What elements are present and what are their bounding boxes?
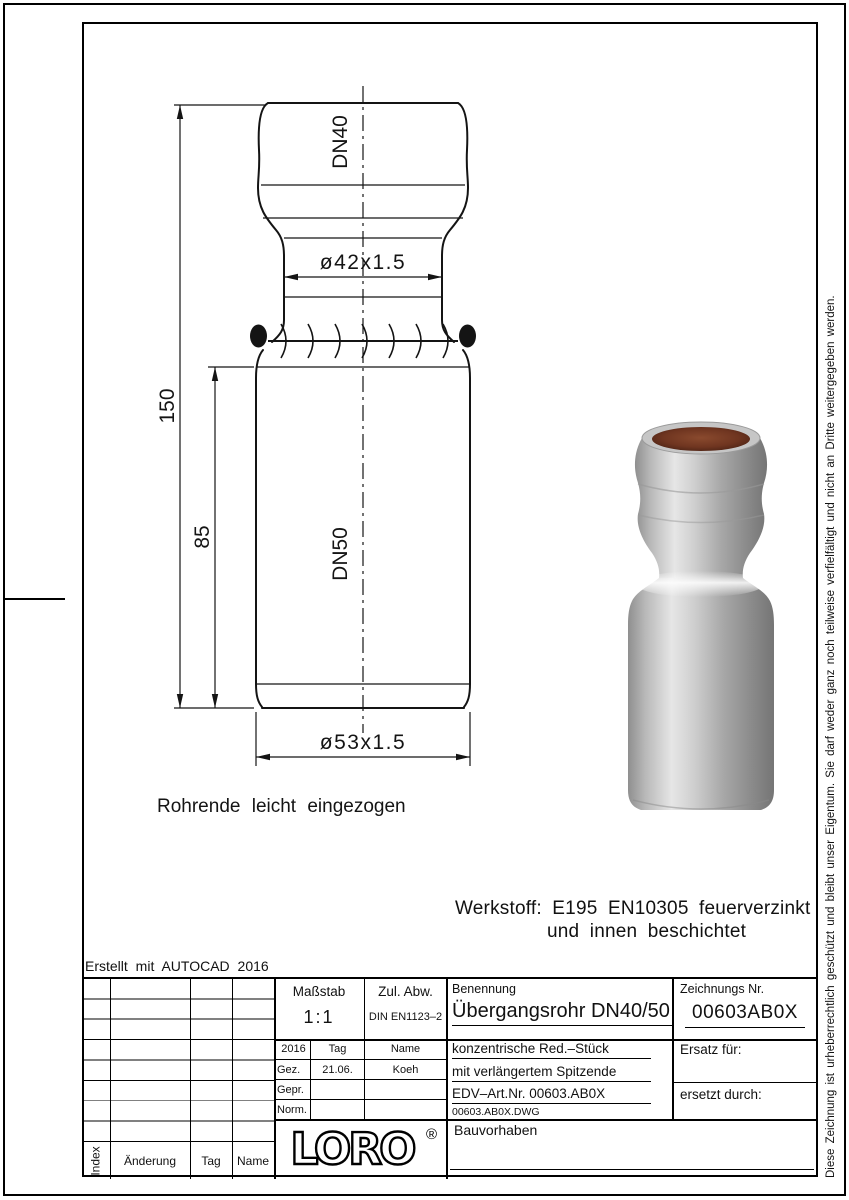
drawn-label: Gez. [274, 1059, 310, 1079]
description-row-1: konzentrische Red.–Stück [446, 1039, 672, 1062]
tolerance-value: DIN EN1123–2 [365, 1011, 446, 1023]
render-socket [635, 438, 767, 578]
material-line1: Werkstoff: E195 EN10305 feuerverzinkt [455, 897, 810, 920]
socket-left-wall [258, 103, 284, 342]
designation-label: Benennung [452, 982, 666, 996]
title-block: Index Änderung Tag Name Maßstab 1:1 Zul.… [82, 977, 818, 1177]
file-name-row: 00603.AB0X.DWG [446, 1106, 672, 1119]
standard-name [364, 1099, 446, 1119]
checked-date [310, 1079, 364, 1099]
signature-tag-header: Tag [310, 1039, 364, 1059]
drawing-number-cell: Zeichnungs Nr. 00603AB0X [672, 979, 818, 1039]
dn-top-label: DN40 [329, 115, 352, 169]
description-row-2: mit verlängertem Spitzende [446, 1062, 672, 1084]
pipe-end-note: Rohrende leicht eingezogen [157, 796, 406, 817]
standard-date [310, 1099, 364, 1119]
dim-total-height-label: 150 [156, 388, 179, 423]
project-label: Bauvorhaben [454, 1122, 810, 1138]
scale-label: Maßstab [274, 979, 364, 999]
loro-logo-text: LORO [290, 1124, 415, 1175]
designation-value: Übergangsrohr DN40/50 [452, 1000, 674, 1026]
material-note: Werkstoff: E195 EN10305 feuerverzinkt un… [455, 897, 810, 943]
revision-table-header: Index Änderung Tag Name [82, 1142, 274, 1179]
loro-logo: LORO ® [278, 1121, 442, 1177]
dimension-lines [174, 105, 470, 766]
render-bore [652, 427, 750, 451]
dim-bottom-diameter-label: ø53x1.5 [320, 731, 406, 754]
standard-label: Norm. [274, 1099, 310, 1119]
drawing-number-label: Zeichnungs Nr. [680, 982, 810, 996]
revision-name-header: Name [232, 1142, 274, 1179]
signature-name-header: Name [364, 1039, 446, 1059]
socket-right-wall [442, 103, 468, 342]
revision-date-header: Tag [190, 1142, 232, 1179]
signature-year: 2016 [274, 1039, 310, 1059]
description-row-3: EDV–Art.Nr. 00603.AB0X [446, 1084, 672, 1106]
scale-value: 1:1 [274, 1007, 364, 1028]
replaced-by-cell: ersetzt durch: [672, 1082, 818, 1119]
render-body [628, 578, 774, 810]
pipe-3d-render [628, 422, 774, 810]
tolerance-cell: Zul. Abw. DIN EN1123–2 [364, 979, 446, 1039]
checked-label: Gepr. [274, 1079, 310, 1099]
drawn-name: Koeh [364, 1059, 446, 1079]
dim-top-diameter-label: ø42x1.5 [320, 251, 406, 274]
dn-bottom-label: DN50 [329, 527, 352, 581]
drawn-date: 21.06. [310, 1059, 364, 1079]
dimension-arrows [177, 105, 470, 760]
signature-table: 2016 Tag Name Gez. 21.06. Koeh Gepr. Nor… [274, 1039, 446, 1119]
drawing-number-value: 00603AB0X [685, 1002, 805, 1028]
created-with-note: Erstellt mit AUTOCAD 2016 [85, 958, 269, 974]
project-cell: Bauvorhaben [446, 1119, 818, 1179]
project-writing-line [450, 1169, 814, 1170]
body-left-wall [256, 350, 263, 707]
joint-bead-left [250, 325, 267, 348]
designation-cell: Benennung Übergangsrohr DN40/50 [446, 979, 672, 1039]
material-line2: und innen beschichtet [547, 920, 810, 943]
drawing-sheet: 150 85 DN40 DN50 ø42x1.5 ø53x1.5 Rohrend… [0, 0, 849, 1200]
scale-cell: Maßstab 1:1 [274, 979, 364, 1039]
render-shoulder-shine [636, 571, 764, 597]
company-logo-cell: LORO ® [274, 1119, 446, 1179]
dim-body-height-label: 85 [191, 525, 214, 548]
tolerance-label: Zul. Abw. [365, 979, 446, 999]
copyright-vertical-text: Diese Zeichnung ist urheberrechtlich ges… [825, 18, 843, 1178]
revision-index-header: Index [82, 1142, 110, 1179]
registered-trademark-icon: ® [426, 1126, 437, 1143]
checked-name [364, 1079, 446, 1099]
body-right-wall [463, 350, 470, 707]
joint-bead-right [459, 325, 476, 348]
revision-change-header: Änderung [110, 1142, 190, 1179]
replacement-for-cell: Ersatz für: [672, 1039, 818, 1082]
